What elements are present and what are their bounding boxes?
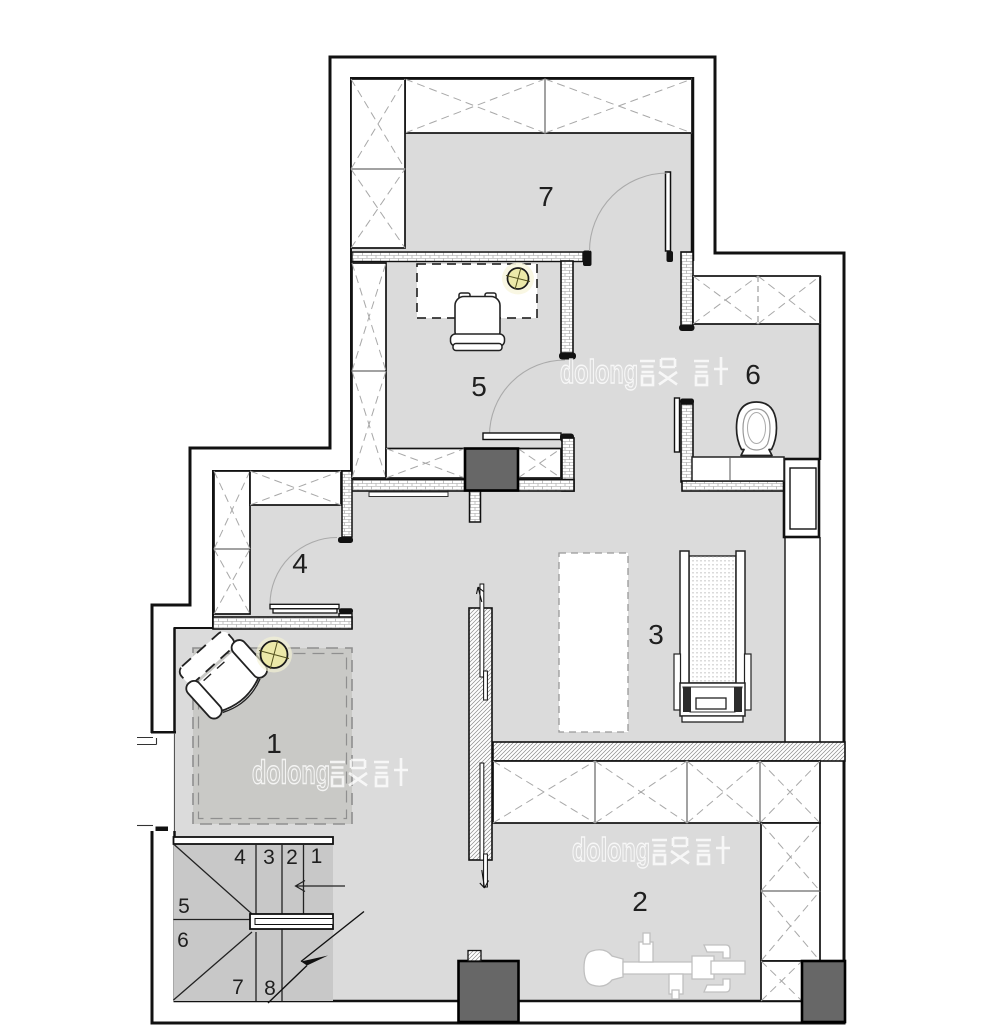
- svg-text:5: 5: [178, 895, 190, 918]
- svg-text:7: 7: [538, 181, 554, 212]
- svg-text:1: 1: [311, 845, 323, 868]
- svg-text:4: 4: [292, 548, 308, 579]
- svg-text:4: 4: [234, 846, 246, 869]
- svg-text:8: 8: [264, 977, 276, 1000]
- svg-text:3: 3: [648, 619, 664, 650]
- svg-text:6: 6: [177, 929, 189, 952]
- svg-text:dolong: dolong: [560, 353, 638, 390]
- svg-text:2: 2: [632, 886, 648, 917]
- svg-text:5: 5: [471, 371, 487, 402]
- svg-text:2: 2: [286, 846, 298, 869]
- svg-text:3: 3: [263, 846, 275, 869]
- svg-text:dolong: dolong: [252, 754, 330, 791]
- svg-text:6: 6: [745, 359, 761, 390]
- svg-text:dolong: dolong: [572, 831, 650, 868]
- svg-text:7: 7: [232, 976, 244, 999]
